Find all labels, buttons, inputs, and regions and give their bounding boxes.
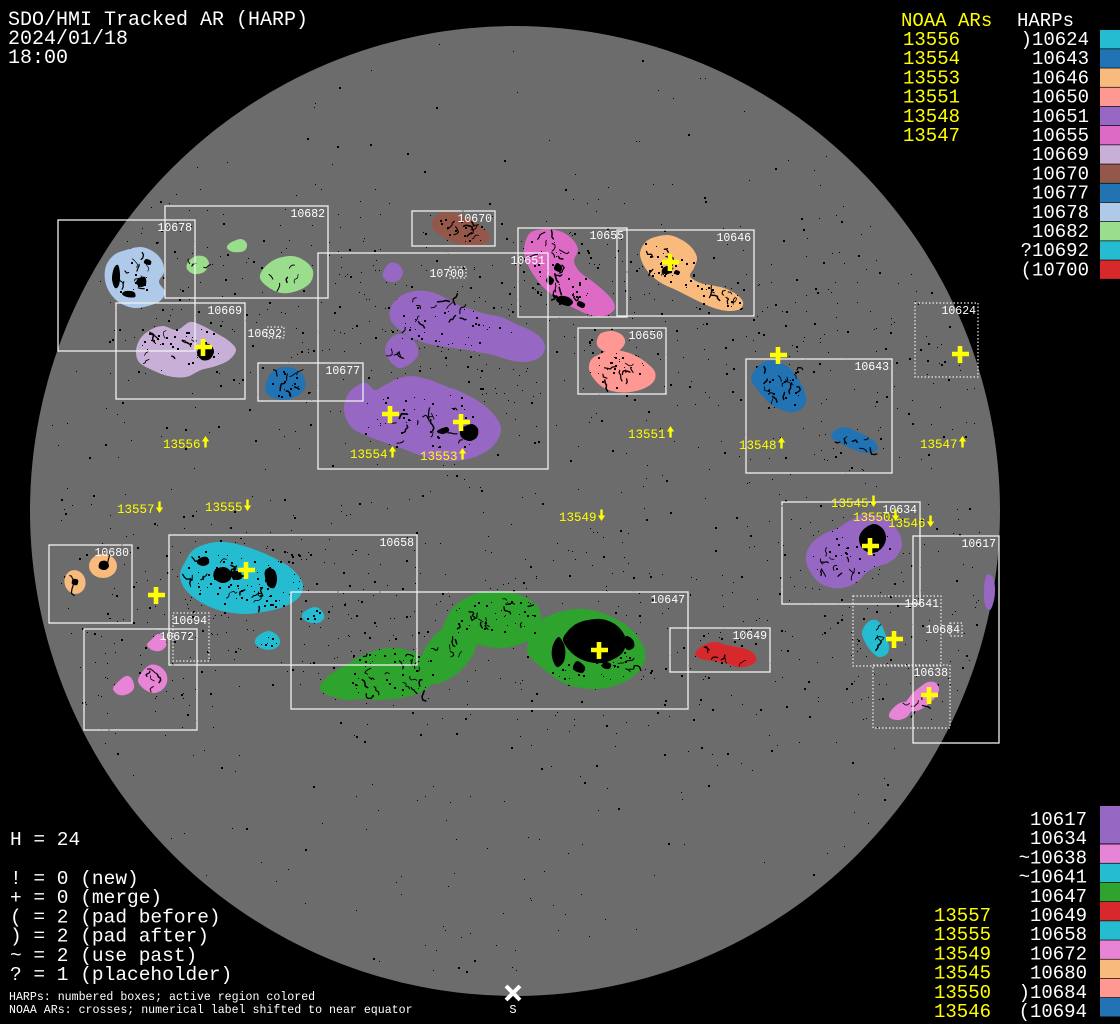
svg-text:S: S (509, 1003, 516, 1017)
svg-text:13547: 13547 (903, 125, 960, 147)
svg-text:10638: 10638 (913, 667, 948, 680)
svg-text:10700: 10700 (429, 268, 464, 281)
svg-text:13546: 13546 (888, 517, 926, 531)
svg-text:10651: 10651 (510, 255, 545, 268)
svg-text:18:00: 18:00 (8, 47, 68, 70)
svg-text:13556: 13556 (163, 438, 201, 452)
svg-text:10650: 10650 (628, 330, 663, 343)
svg-text:13551: 13551 (628, 428, 666, 442)
svg-text:13545: 13545 (831, 497, 869, 511)
svg-text:? = 1 (placeholder): ? = 1 (placeholder) (10, 964, 232, 986)
svg-text:10617: 10617 (961, 538, 996, 551)
svg-text:10672: 10672 (159, 631, 194, 644)
svg-text:13550: 13550 (853, 511, 891, 525)
svg-text:HARPs: numbered boxes; active: HARPs: numbered boxes; active region col… (9, 991, 315, 1004)
svg-text:(10700: (10700 (1021, 259, 1089, 281)
svg-text:10682: 10682 (290, 208, 325, 221)
svg-text:10641: 10641 (904, 598, 939, 611)
svg-text:10692: 10692 (247, 328, 282, 341)
svg-text:10677: 10677 (325, 365, 360, 378)
svg-text:10655: 10655 (589, 230, 624, 243)
svg-text:13549: 13549 (559, 511, 597, 525)
svg-text:10680: 10680 (94, 547, 129, 560)
svg-text:13554: 13554 (350, 448, 388, 462)
svg-text:13548: 13548 (739, 439, 777, 453)
svg-text:10678: 10678 (157, 222, 192, 235)
svg-text:13547: 13547 (920, 438, 958, 452)
svg-text:10669: 10669 (207, 305, 242, 318)
svg-text:13553: 13553 (420, 450, 458, 464)
svg-text:(10694: (10694 (1019, 1001, 1087, 1023)
svg-text:13555: 13555 (205, 501, 243, 515)
svg-text:10624: 10624 (941, 305, 976, 318)
svg-text:10646: 10646 (716, 232, 751, 245)
svg-text:10647: 10647 (650, 594, 685, 607)
svg-text:10670: 10670 (457, 213, 492, 226)
svg-text:10643: 10643 (854, 361, 889, 374)
svg-text:10649: 10649 (732, 630, 767, 643)
svg-text:10684: 10684 (925, 624, 960, 637)
svg-text:13546: 13546 (934, 1001, 991, 1023)
svg-text:13557: 13557 (117, 503, 155, 517)
svg-text:H = 24: H = 24 (10, 829, 80, 851)
svg-text:10694: 10694 (172, 615, 207, 628)
svg-text:NOAA ARs: crosses; numerical l: NOAA ARs: crosses; numerical label shift… (9, 1004, 413, 1017)
svg-text:10658: 10658 (379, 537, 414, 550)
